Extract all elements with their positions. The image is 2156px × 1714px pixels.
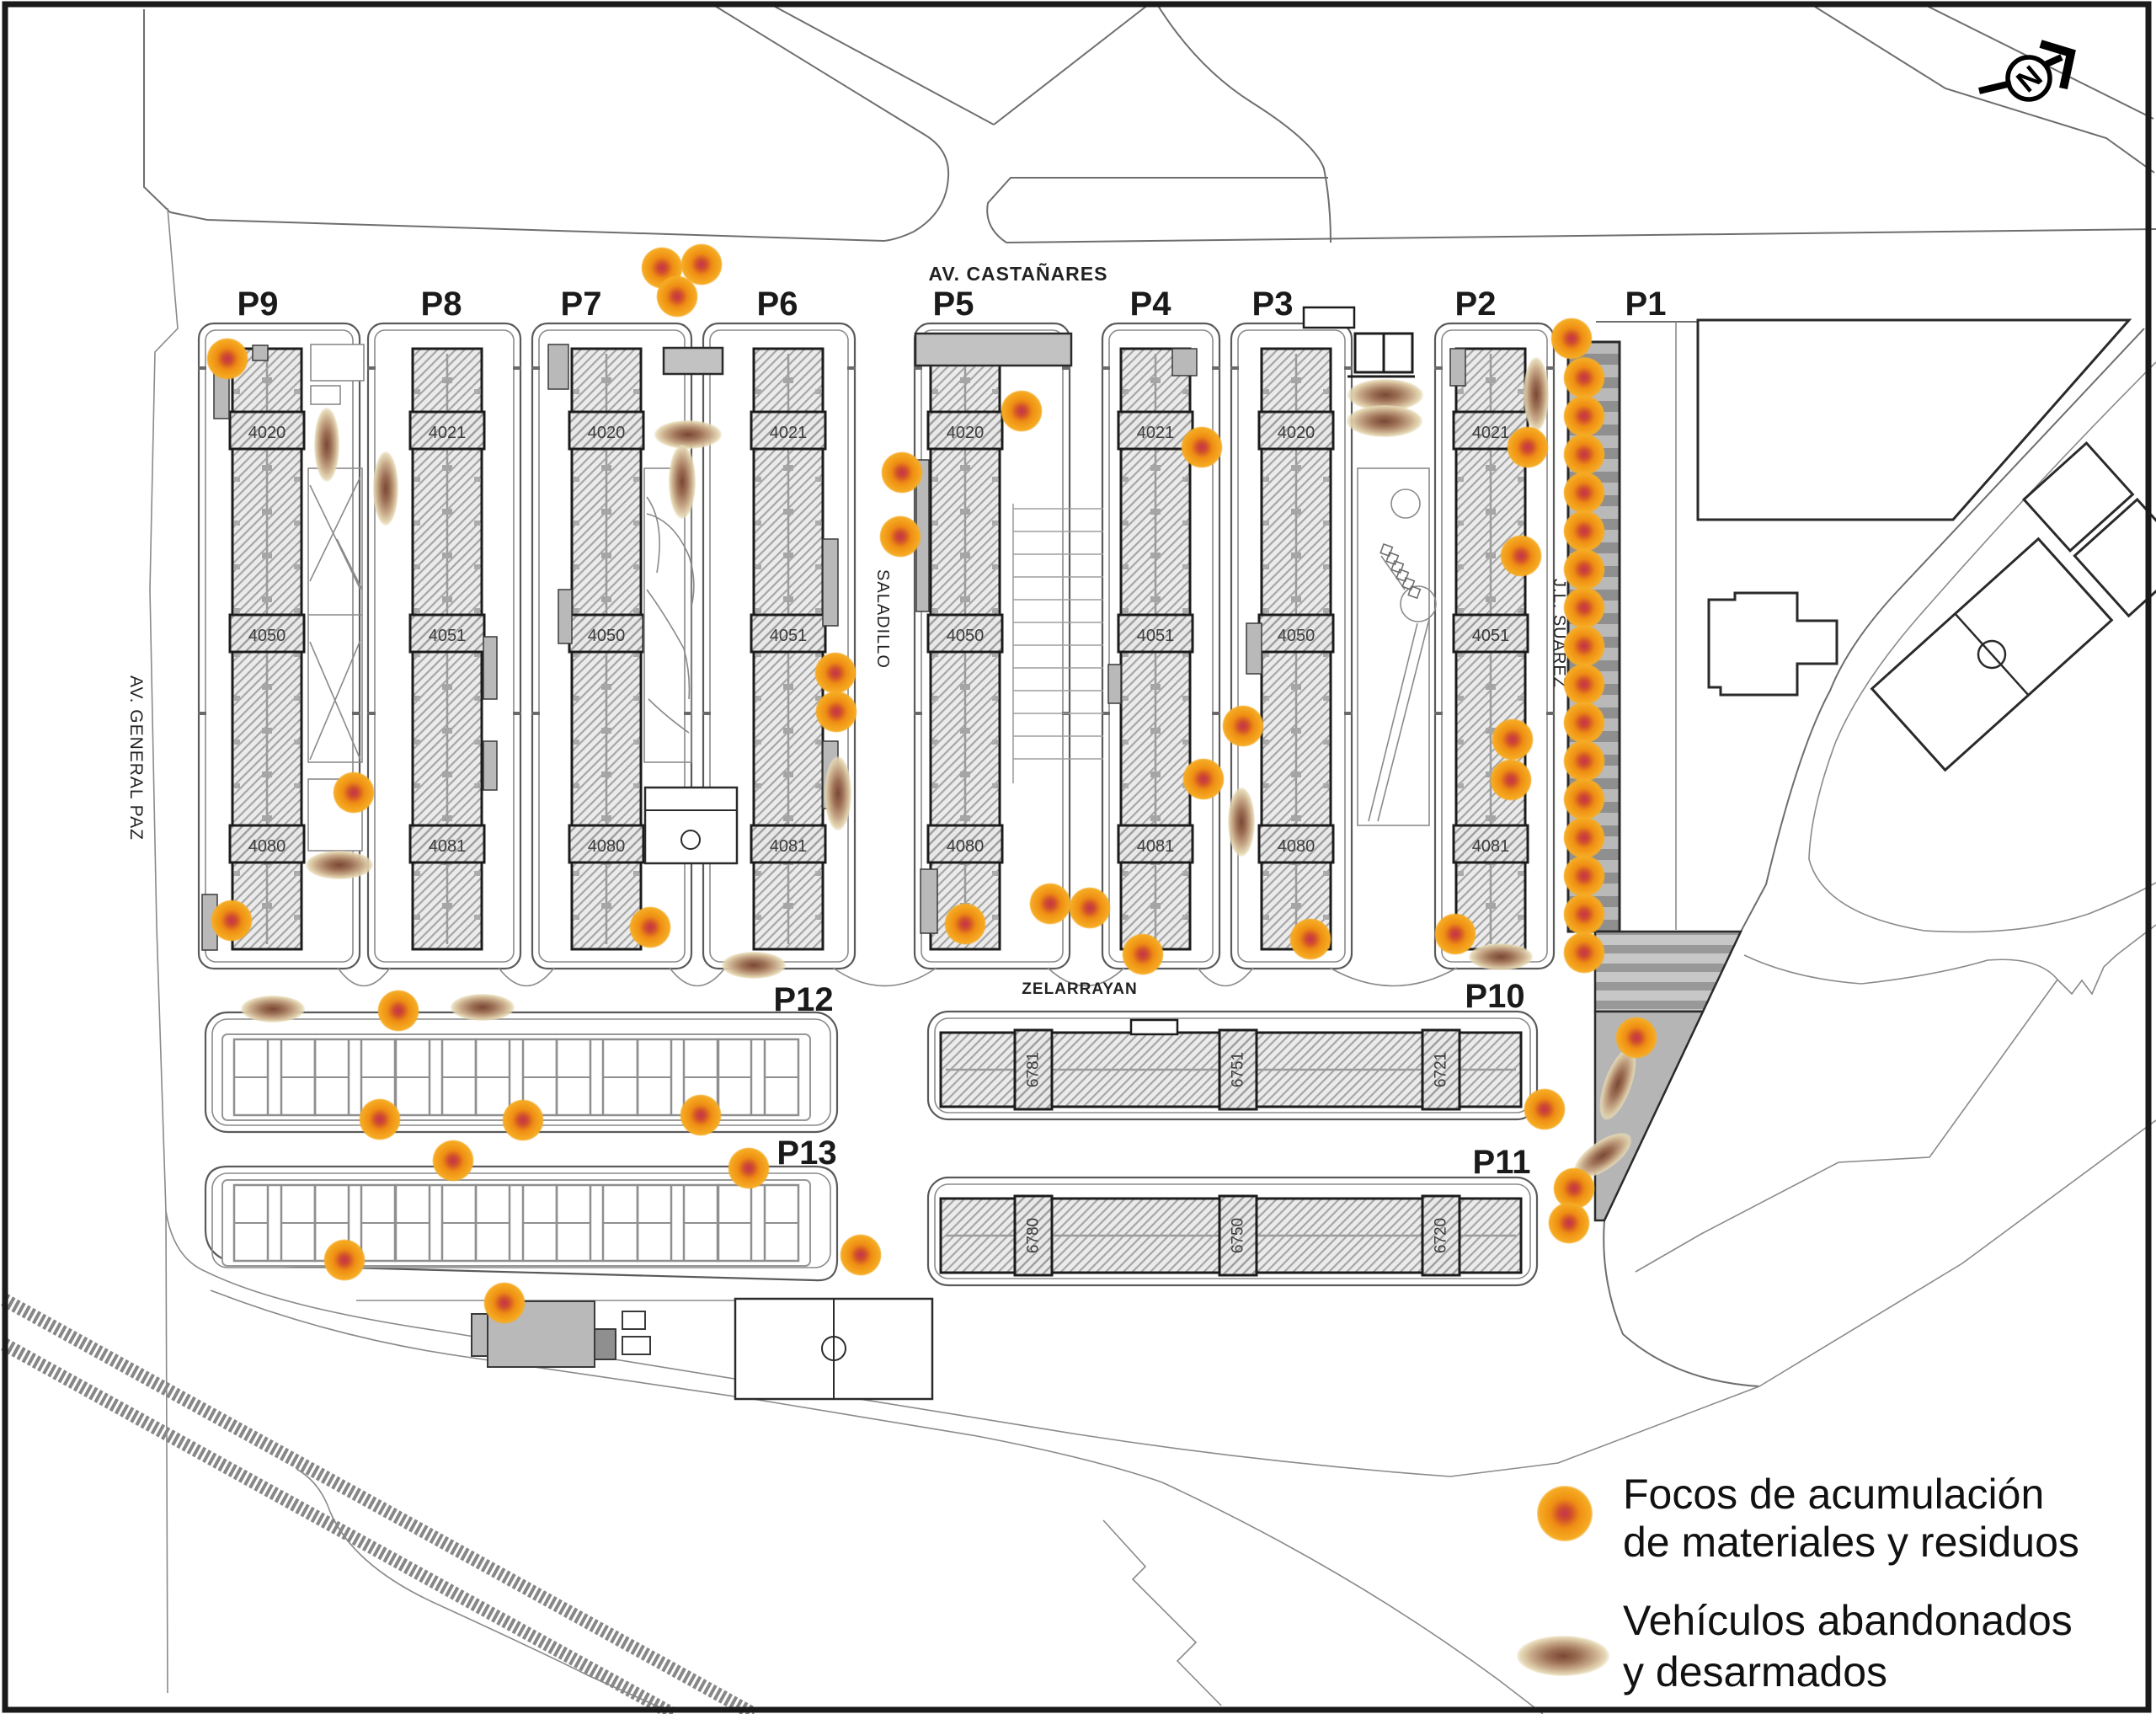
svg-text:4051: 4051 xyxy=(1137,627,1175,645)
svg-text:4050: 4050 xyxy=(588,627,626,645)
svg-text:6780: 6780 xyxy=(1025,1218,1043,1253)
svg-text:P11: P11 xyxy=(1473,1144,1531,1181)
svg-text:P13: P13 xyxy=(776,1135,836,1172)
svg-text:y desarmados: y desarmados xyxy=(1623,1648,1887,1695)
svg-text:P9: P9 xyxy=(237,286,279,323)
svg-text:4080: 4080 xyxy=(1278,837,1315,856)
svg-text:P10: P10 xyxy=(1465,978,1524,1015)
svg-text:4021: 4021 xyxy=(1472,424,1510,442)
svg-text:4050: 4050 xyxy=(1278,627,1315,645)
svg-text:6781: 6781 xyxy=(1025,1052,1043,1087)
svg-text:4081: 4081 xyxy=(1472,837,1510,856)
svg-text:4081: 4081 xyxy=(1137,837,1175,856)
svg-text:4020: 4020 xyxy=(588,424,626,442)
svg-text:6750: 6750 xyxy=(1230,1218,1247,1253)
svg-text:4020: 4020 xyxy=(947,424,985,442)
svg-text:Vehículos abandonados: Vehículos abandonados xyxy=(1623,1597,2073,1644)
svg-text:4020: 4020 xyxy=(248,424,286,442)
svg-text:4050: 4050 xyxy=(947,627,985,645)
svg-text:de materiales y residuos: de materiales y residuos xyxy=(1623,1519,2079,1566)
svg-text:P1: P1 xyxy=(1625,286,1667,323)
svg-text:P2: P2 xyxy=(1455,286,1497,323)
svg-text:6721: 6721 xyxy=(1433,1052,1450,1087)
svg-text:P3: P3 xyxy=(1252,286,1294,323)
svg-text:4021: 4021 xyxy=(429,424,467,442)
svg-text:4081: 4081 xyxy=(770,837,808,856)
svg-text:6720: 6720 xyxy=(1433,1218,1450,1253)
svg-text:4021: 4021 xyxy=(770,424,808,442)
svg-text:P7: P7 xyxy=(561,286,602,323)
svg-text:SALADILLO: SALADILLO xyxy=(873,569,892,669)
svg-text:4051: 4051 xyxy=(1472,627,1510,645)
svg-text:P12: P12 xyxy=(773,981,833,1018)
svg-text:4051: 4051 xyxy=(770,627,808,645)
svg-text:AV. GENERAL PAZ: AV. GENERAL PAZ xyxy=(126,675,146,841)
svg-text:4020: 4020 xyxy=(1278,424,1315,442)
svg-text:4021: 4021 xyxy=(1137,424,1175,442)
svg-text:4080: 4080 xyxy=(248,837,286,856)
svg-text:4080: 4080 xyxy=(947,837,985,856)
svg-text:4050: 4050 xyxy=(248,627,286,645)
svg-text:Focos de acumulación: Focos de acumulación xyxy=(1623,1471,2044,1518)
svg-text:P6: P6 xyxy=(757,286,798,323)
svg-text:6751: 6751 xyxy=(1230,1052,1247,1087)
svg-text:AV. CASTAÑARES: AV. CASTAÑARES xyxy=(929,262,1108,285)
svg-text:P5: P5 xyxy=(933,286,974,323)
svg-text:4080: 4080 xyxy=(588,837,626,856)
svg-text:ZELARRAYAN: ZELARRAYAN xyxy=(1022,980,1137,998)
svg-text:4051: 4051 xyxy=(429,627,467,645)
svg-text:J.L. SUAREZ: J.L. SUAREZ xyxy=(1550,579,1568,688)
svg-text:P4: P4 xyxy=(1130,286,1172,323)
svg-text:4081: 4081 xyxy=(429,837,467,856)
svg-text:P8: P8 xyxy=(421,286,462,323)
